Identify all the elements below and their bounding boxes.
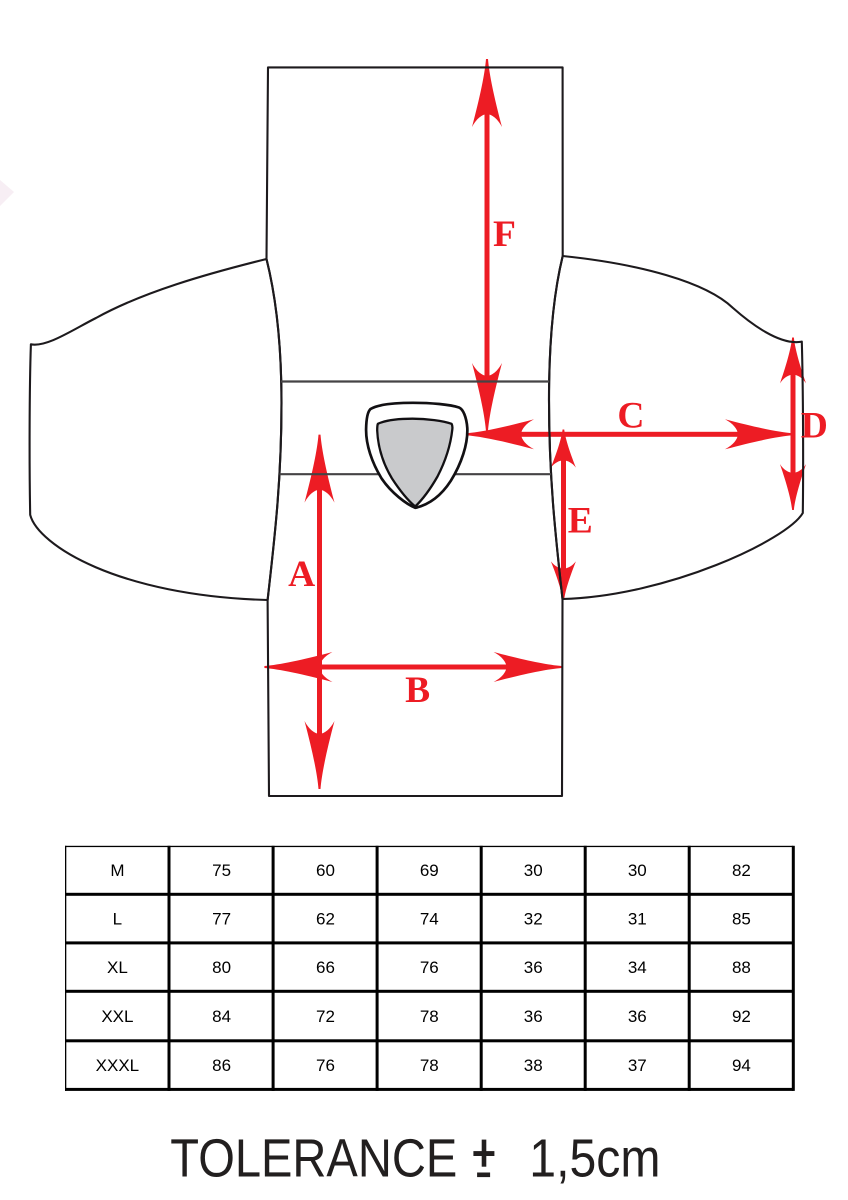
svg-text:85: 85 bbox=[732, 910, 751, 929]
svg-text:82: 82 bbox=[732, 861, 751, 880]
svg-text:38: 38 bbox=[524, 1056, 543, 1075]
svg-text:92: 92 bbox=[732, 1007, 751, 1026]
svg-text:XXL: XXL bbox=[101, 1007, 133, 1026]
svg-text:B: B bbox=[405, 670, 430, 711]
svg-text:69: 69 bbox=[420, 861, 439, 880]
svg-text:32: 32 bbox=[524, 910, 543, 929]
svg-text:86: 86 bbox=[212, 1056, 231, 1075]
svg-text:78: 78 bbox=[420, 1056, 439, 1075]
svg-text:L: L bbox=[113, 910, 122, 929]
svg-text:66: 66 bbox=[316, 958, 335, 977]
svg-text:76: 76 bbox=[420, 958, 439, 977]
svg-text:36: 36 bbox=[524, 958, 543, 977]
svg-text:1,5cm: 1,5cm bbox=[529, 1128, 660, 1188]
svg-text:74: 74 bbox=[420, 910, 439, 929]
svg-text:30: 30 bbox=[524, 861, 543, 880]
svg-text:60: 60 bbox=[316, 861, 335, 880]
svg-text:C: C bbox=[617, 395, 644, 436]
svg-text:XXXL: XXXL bbox=[96, 1056, 139, 1075]
svg-text:31: 31 bbox=[628, 910, 647, 929]
svg-text:30: 30 bbox=[628, 861, 647, 880]
svg-text:M: M bbox=[110, 861, 124, 880]
svg-text:36: 36 bbox=[524, 1007, 543, 1026]
svg-text:F: F bbox=[493, 214, 516, 255]
svg-text:94: 94 bbox=[732, 1056, 751, 1075]
svg-text:TOLERANCE: TOLERANCE bbox=[170, 1127, 457, 1188]
svg-text:80: 80 bbox=[212, 958, 231, 977]
svg-text:78: 78 bbox=[420, 1007, 439, 1026]
svg-text:XL: XL bbox=[107, 958, 128, 977]
svg-text:75: 75 bbox=[212, 861, 231, 880]
svg-text:84: 84 bbox=[212, 1007, 231, 1026]
svg-text:37: 37 bbox=[628, 1056, 647, 1075]
svg-text:72: 72 bbox=[316, 1007, 335, 1026]
svg-text:77: 77 bbox=[212, 910, 231, 929]
svg-text:62: 62 bbox=[316, 910, 335, 929]
svg-text:34: 34 bbox=[628, 958, 647, 977]
svg-text:88: 88 bbox=[732, 958, 751, 977]
svg-text:76: 76 bbox=[316, 1056, 335, 1075]
svg-text:D: D bbox=[801, 406, 828, 447]
svg-text:A: A bbox=[288, 554, 315, 595]
svg-text:36: 36 bbox=[628, 1007, 647, 1026]
svg-text:E: E bbox=[568, 501, 593, 542]
